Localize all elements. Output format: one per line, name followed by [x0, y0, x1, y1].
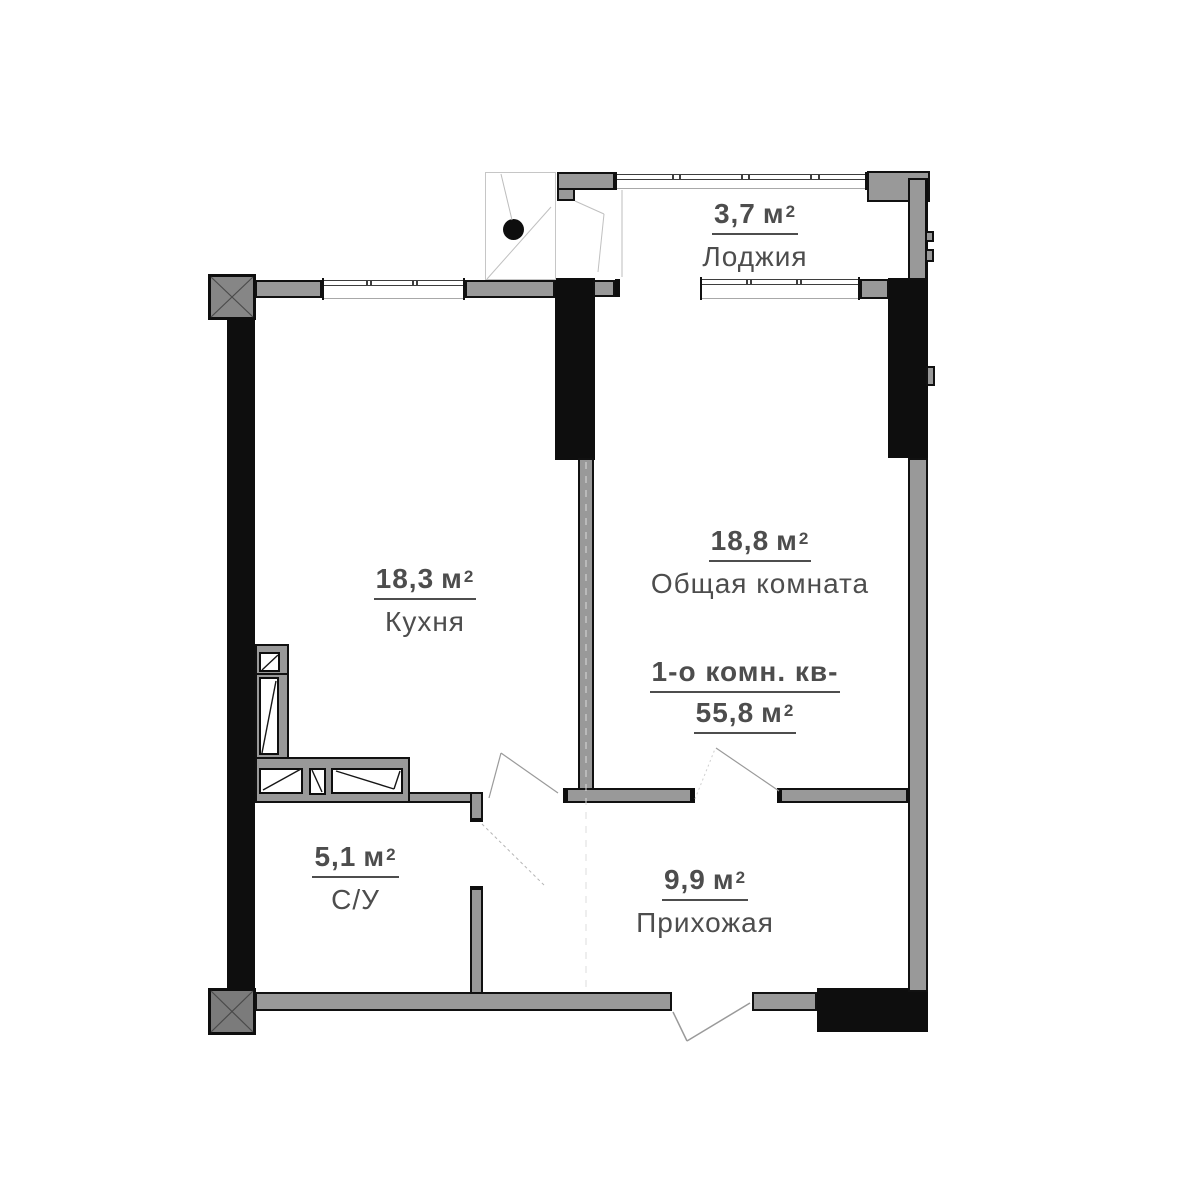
counter-box-2 [309, 768, 326, 795]
wall-kitchen-top-left [255, 280, 322, 298]
room-name-hallway: Прихожая [590, 907, 820, 939]
wall-bottom-right [752, 992, 817, 1011]
duct-shaft-leaf [259, 677, 279, 755]
wall-bottom-left [255, 992, 672, 1011]
area-bathroom: 5,1м2 [268, 841, 443, 878]
room-name-loggia: Лоджия [630, 241, 880, 273]
window-kitchen [322, 278, 465, 300]
apartment-summary: 1-о комн. кв- 55,8м2 [600, 656, 890, 734]
wall-su-door-stub [470, 792, 483, 822]
wall-kitchen-top-right [465, 280, 555, 298]
room-label-kitchen: 18,3м2 Кухня [300, 563, 550, 638]
room-label-common: 18,8м2 Общая комната [600, 525, 920, 600]
room-label-loggia: 3,7м2 Лоджия [630, 198, 880, 273]
pylon-right [888, 278, 928, 458]
entrance-wall-block [817, 988, 928, 1032]
common-door-swing [695, 748, 779, 799]
bathroom-door-swing [482, 824, 545, 886]
wall-loggia-right [908, 178, 928, 280]
wall-common-south-right [777, 788, 908, 803]
window-common-loggia [700, 277, 860, 300]
wall-right-tab [926, 366, 935, 386]
duct-box-top-inner [259, 652, 280, 672]
column-bottom-left [208, 988, 256, 1035]
wall-left [227, 320, 255, 992]
window-loggia-top [615, 172, 867, 190]
area-loggia: 3,7м2 [630, 198, 880, 235]
loggia-corner-block-left-leg [557, 188, 575, 201]
wall-notch-upper [925, 231, 934, 242]
room-name-common: Общая комната [600, 568, 920, 600]
area-common: 18,8м2 [600, 525, 920, 562]
loggia-column-dot [503, 219, 524, 240]
wall-common-south-left [563, 788, 695, 803]
wall-common-top-stub [593, 280, 615, 297]
jamb-balcony-door [615, 279, 620, 297]
room-label-bathroom: 5,1м2 С/У [268, 841, 443, 916]
wall-su-east [470, 886, 483, 994]
floor-plan: 3,7м2 Лоджия 18,8м2 Общая комната 1-о ко… [0, 0, 1181, 1181]
wall-notch-lower [925, 249, 934, 262]
entrance-door-swing [673, 1003, 750, 1041]
area-kitchen: 18,3м2 [300, 563, 550, 600]
room-label-hallway: 9,9м2 Прихожая [590, 864, 820, 939]
counter-box-3 [331, 768, 403, 794]
wall-kitchen-common [578, 458, 594, 790]
wall-common-top-right-block [860, 279, 889, 299]
kitchen-door-swing [489, 753, 558, 798]
counter-box-1 [259, 768, 303, 794]
area-hallway: 9,9м2 [590, 864, 820, 901]
apartment-total-area: 55,8м2 [600, 697, 890, 734]
column-top-left [208, 274, 256, 320]
pylon-center [555, 278, 595, 460]
apartment-type: 1-о комн. кв- [600, 656, 890, 693]
room-name-kitchen: Кухня [300, 606, 550, 638]
room-name-bathroom: С/У [268, 884, 443, 916]
